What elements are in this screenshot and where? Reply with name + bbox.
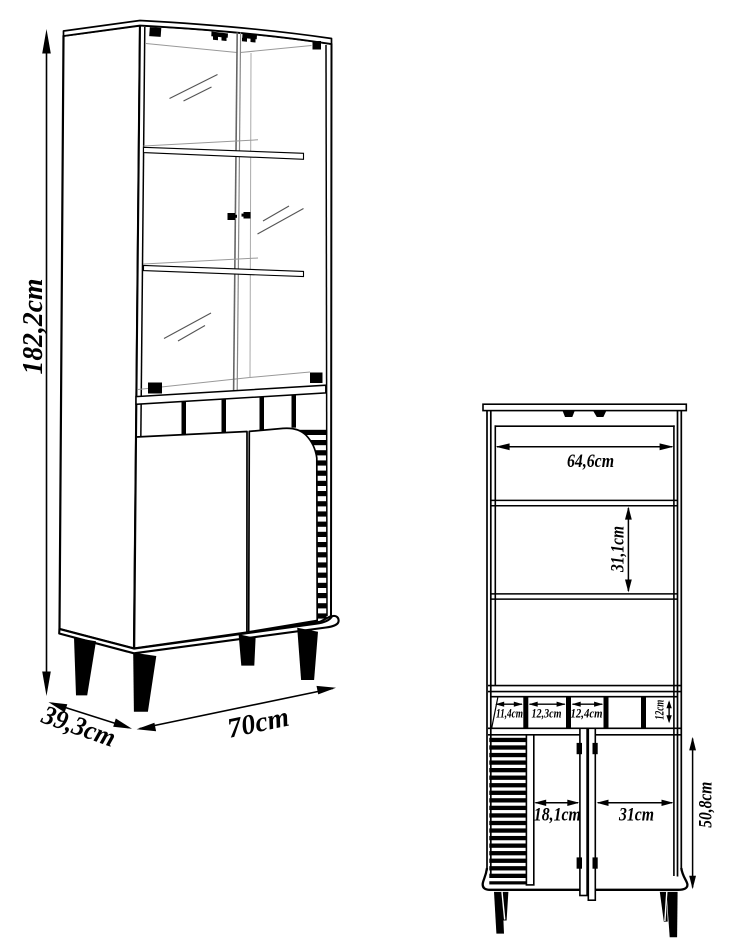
svg-text:50,8cm: 50,8cm <box>696 782 717 828</box>
svg-text:31,1cm: 31,1cm <box>608 526 629 573</box>
svg-text:11,4cm: 11,4cm <box>496 707 523 721</box>
svg-text:12cm: 12cm <box>653 700 667 720</box>
svg-text:182,2cm: 182,2cm <box>18 279 49 375</box>
svg-text:12,4cm: 12,4cm <box>571 707 603 721</box>
svg-text:18,1cm: 18,1cm <box>534 804 581 825</box>
svg-text:64,6cm: 64,6cm <box>567 451 614 472</box>
svg-text:12,3cm: 12,3cm <box>532 707 562 721</box>
svg-text:31cm: 31cm <box>618 804 654 825</box>
